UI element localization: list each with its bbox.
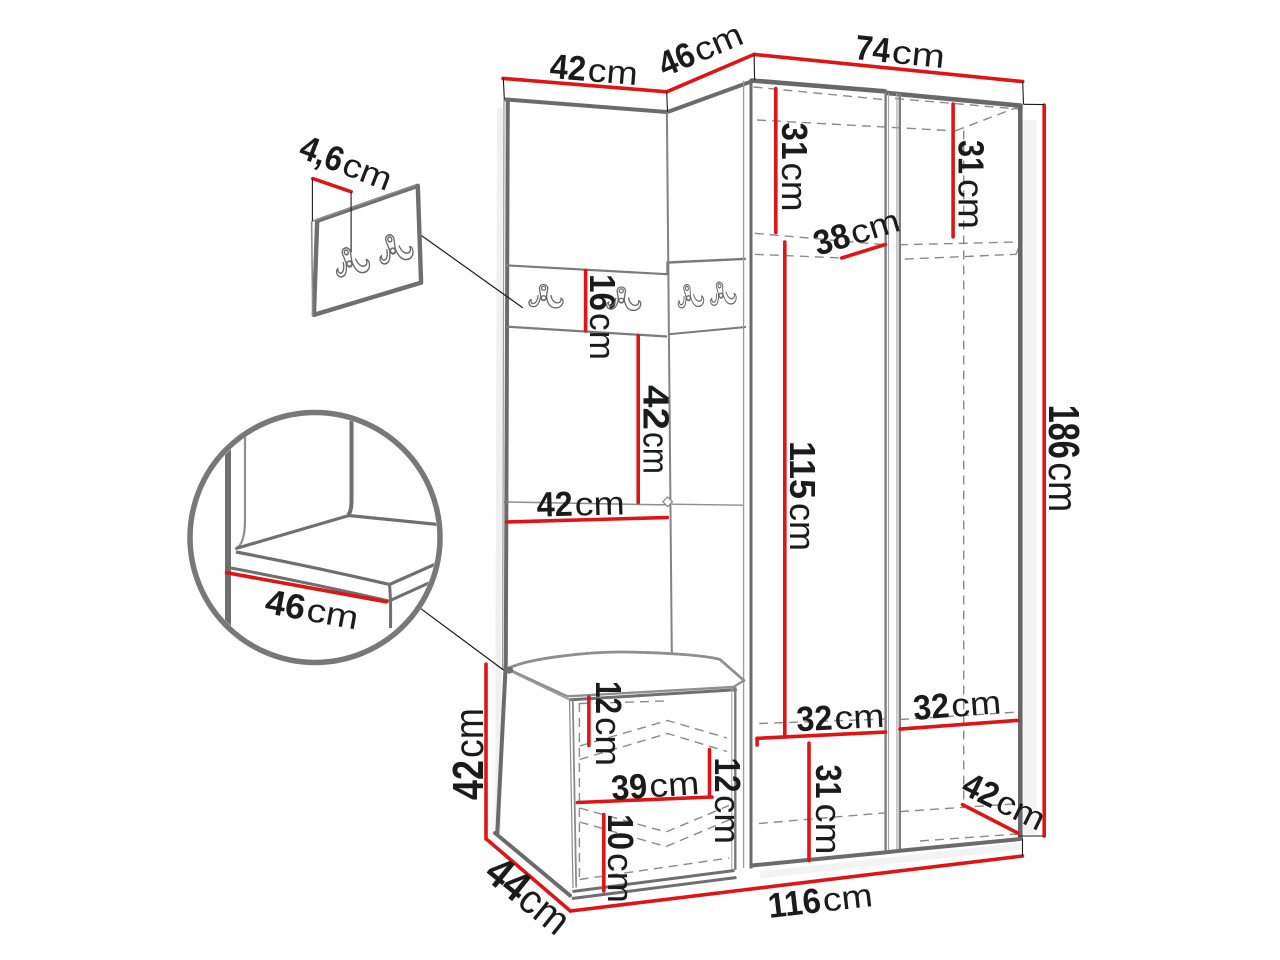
- svg-text:42: 42: [444, 760, 493, 800]
- svg-text:42: 42: [636, 385, 677, 430]
- svg-text:cm: cm: [774, 163, 815, 212]
- svg-text:31: 31: [951, 140, 992, 174]
- svg-text:115: 115: [782, 441, 823, 499]
- svg-text:10: 10: [600, 814, 641, 850]
- svg-text:116: 116: [766, 881, 823, 926]
- svg-text:cm: cm: [600, 853, 641, 903]
- svg-text:39: 39: [610, 767, 649, 808]
- svg-text:74: 74: [853, 28, 892, 70]
- svg-text:cm: cm: [821, 876, 875, 919]
- svg-text:cm: cm: [636, 432, 677, 474]
- svg-text:cm: cm: [588, 717, 629, 766]
- svg-text:cm: cm: [574, 484, 625, 522]
- svg-text:12: 12: [588, 681, 629, 714]
- svg-text:cm: cm: [586, 51, 639, 92]
- svg-text:42: 42: [536, 485, 573, 525]
- svg-text:cm: cm: [582, 313, 623, 360]
- svg-text:cm: cm: [782, 503, 823, 551]
- svg-text:cm: cm: [951, 179, 992, 229]
- svg-text:32: 32: [795, 698, 833, 739]
- svg-text:cm: cm: [808, 804, 849, 855]
- svg-text:31: 31: [808, 765, 849, 799]
- svg-text:186: 186: [1039, 405, 1088, 459]
- svg-text:31: 31: [774, 123, 815, 160]
- svg-text:cm: cm: [707, 795, 748, 844]
- svg-text:12: 12: [707, 758, 748, 793]
- svg-text:cm: cm: [648, 764, 700, 804]
- svg-text:46: 46: [262, 582, 308, 628]
- svg-text:42: 42: [548, 47, 587, 89]
- svg-text:cm: cm: [1040, 462, 1086, 512]
- svg-text:cm: cm: [890, 33, 946, 75]
- svg-text:32: 32: [912, 686, 951, 728]
- svg-text:cm: cm: [950, 683, 1003, 724]
- svg-text:cm: cm: [833, 697, 885, 737]
- svg-text:cm: cm: [446, 708, 492, 758]
